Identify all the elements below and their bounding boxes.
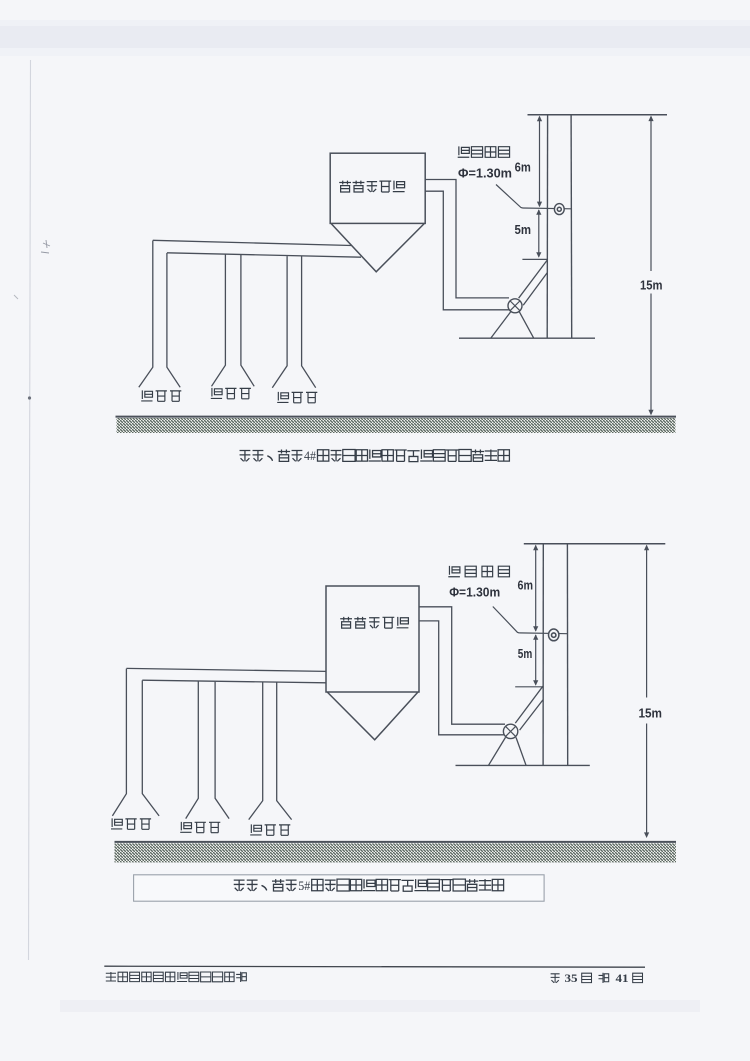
- svg-text:35: 35: [565, 973, 578, 985]
- svg-text:6m: 6m: [518, 578, 534, 592]
- svg-text:5m: 5m: [518, 647, 533, 661]
- svg-text:5#: 5#: [298, 879, 310, 893]
- svg-text:4#: 4#: [304, 449, 316, 463]
- svg-text:Φ=1.30m: Φ=1.30m: [458, 167, 512, 181]
- svg-text:5m: 5m: [515, 223, 532, 237]
- svg-text:Φ=1.30m: Φ=1.30m: [449, 586, 500, 600]
- svg-text:6m: 6m: [515, 160, 531, 174]
- svg-text:15m: 15m: [640, 278, 663, 293]
- svg-text:15m: 15m: [639, 705, 663, 720]
- svg-text:41: 41: [616, 973, 629, 985]
